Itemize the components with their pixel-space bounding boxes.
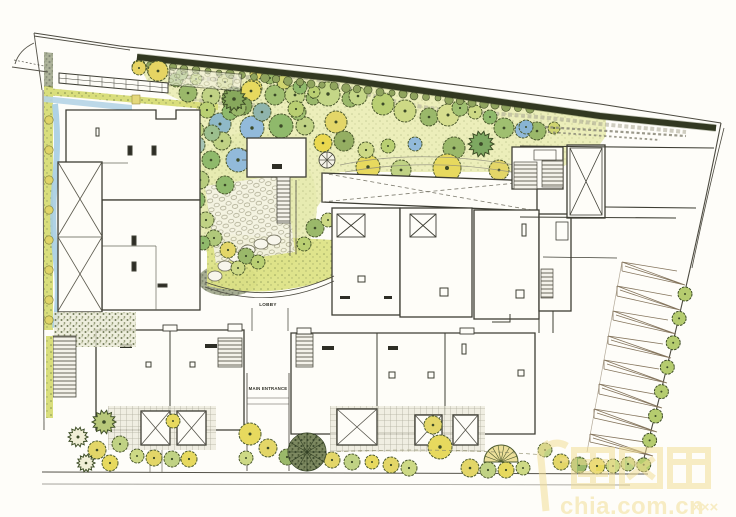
svg-text:MAIN ENTRANCE: MAIN ENTRANCE xyxy=(249,386,288,391)
svg-text:LOBBY: LOBBY xyxy=(259,302,277,307)
svg-text:×××: ××× xyxy=(692,499,719,516)
svg-text:chia.com.cn: chia.com.cn xyxy=(560,493,704,517)
